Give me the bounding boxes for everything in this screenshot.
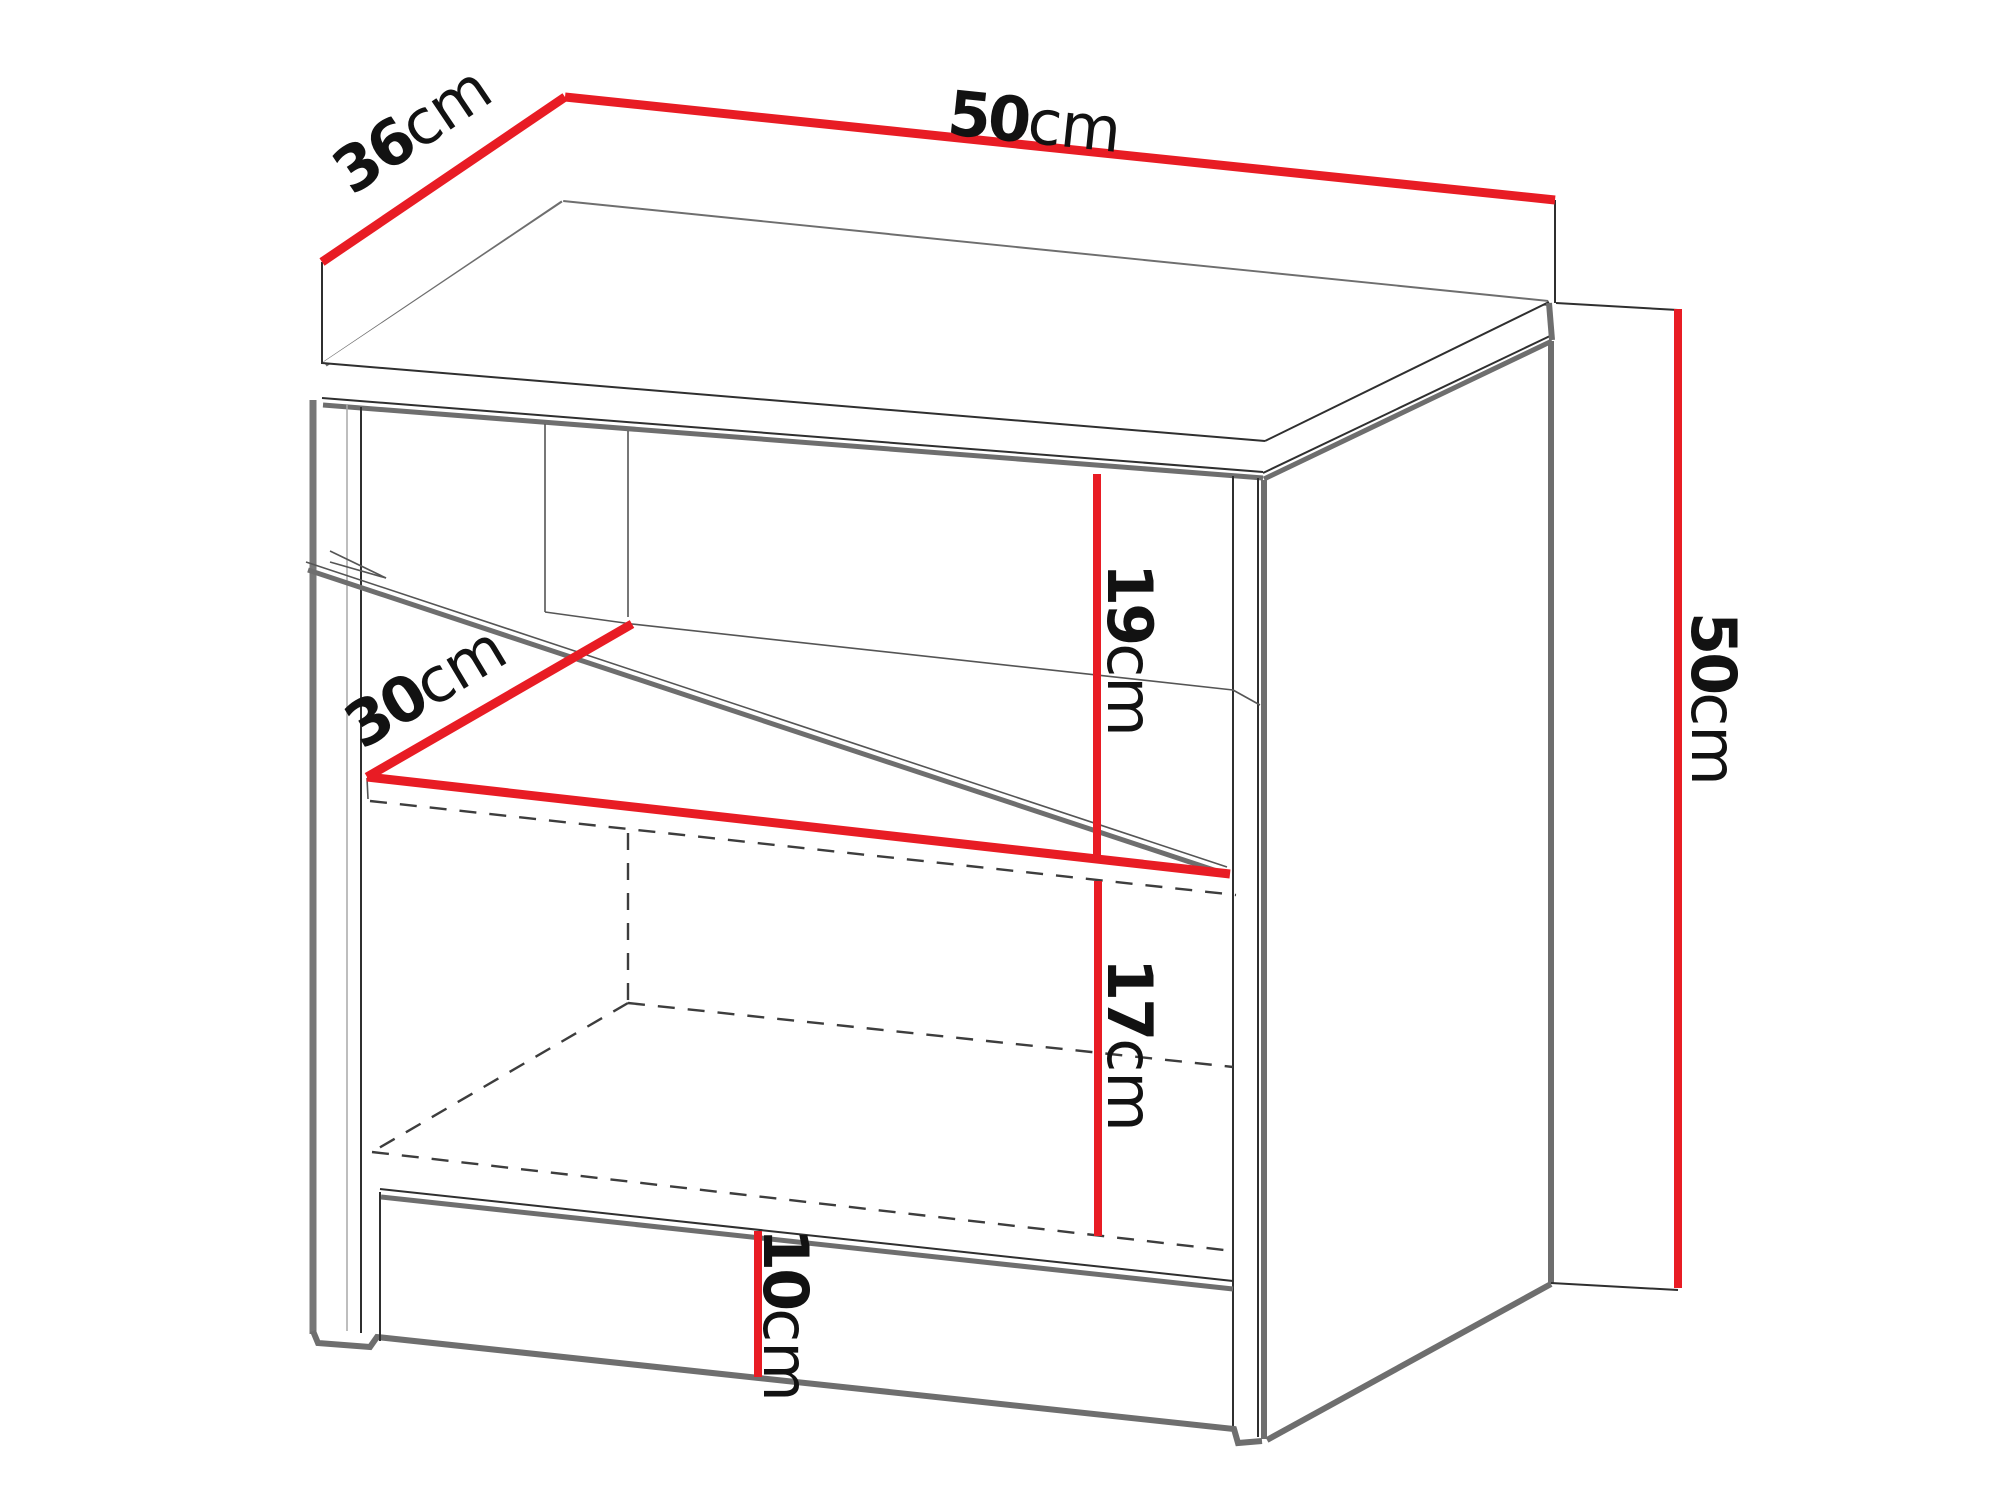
label-upper-shelf: 19cm [1093, 563, 1166, 736]
label-lower-shelf-value: 17 [1093, 958, 1166, 1038]
label-width-unit: cm [1024, 85, 1124, 167]
label-width-value: 50 [944, 76, 1032, 157]
label-drawer: 10cm [749, 1228, 822, 1401]
label-drawer-value: 10 [749, 1228, 822, 1309]
furniture-dimension-diagram: 36cm 50cm 50cm 30cm 19cm 17cm 10cm [0, 0, 2000, 1500]
label-upper-shelf-value: 19 [1093, 563, 1166, 643]
label-height-unit: cm [1677, 692, 1750, 784]
label-height-value: 50 [1677, 612, 1750, 693]
label-drawer-unit: cm [749, 1308, 822, 1400]
top-band-right-end [1549, 303, 1552, 340]
label-upper-shelf-unit: cm [1093, 643, 1166, 735]
label-lower-shelf: 17cm [1093, 958, 1166, 1131]
label-lower-shelf-unit: cm [1093, 1038, 1166, 1130]
label-height: 50cm [1677, 612, 1750, 785]
diagram-canvas: 36cm 50cm 50cm 30cm 19cm 17cm 10cm [0, 0, 2000, 1500]
